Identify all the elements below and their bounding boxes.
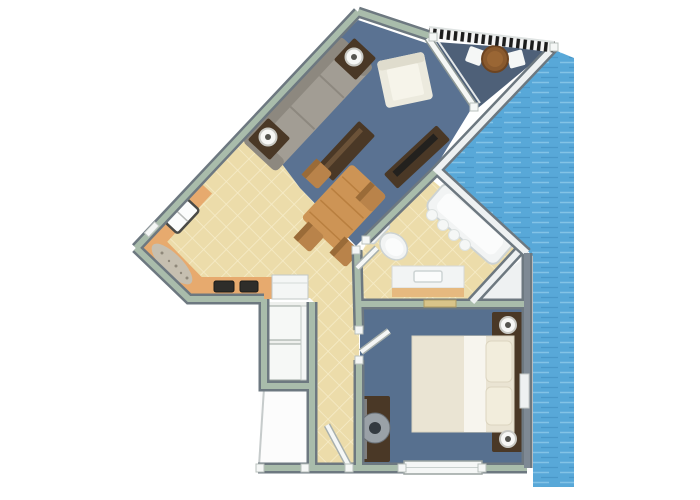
cooktop-burner (214, 281, 234, 292)
kitchen-appliance (272, 275, 308, 299)
vanity-sink (414, 271, 442, 282)
lamp-center (265, 134, 271, 140)
cooktop-burner (240, 281, 258, 292)
balcony-table-center (487, 51, 503, 67)
round-mirror-center (369, 422, 381, 434)
armchair-seat (386, 63, 424, 101)
pillow (486, 341, 512, 382)
table-lamp-left (260, 129, 277, 146)
bed-lamp-bottom (500, 431, 516, 447)
wall-plaque (424, 300, 456, 307)
bed-lamp-top (500, 317, 516, 333)
bedroom-side-window (520, 374, 529, 408)
lamp-center (351, 54, 357, 60)
closet (266, 302, 310, 386)
bed (412, 336, 514, 432)
floor-plan-svg (0, 0, 700, 500)
entry-porch (260, 390, 310, 466)
vanity-front (392, 288, 464, 297)
bed-sheet-fold (464, 336, 486, 432)
floor-plan-image (0, 0, 700, 500)
pillow (486, 387, 512, 425)
table-lamp-right (346, 49, 363, 66)
armchair (377, 52, 434, 109)
vanity (392, 266, 464, 297)
